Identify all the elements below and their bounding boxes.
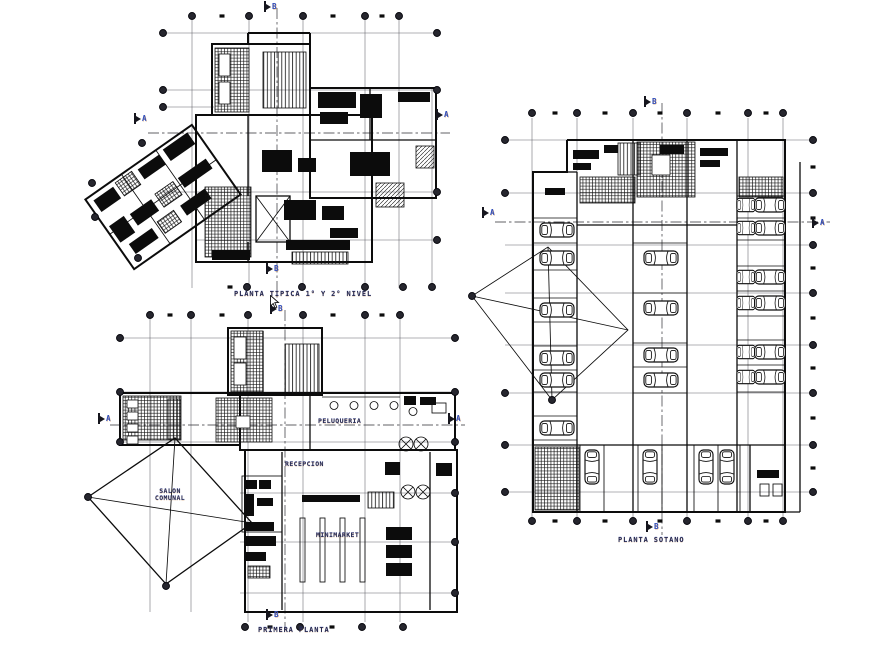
grid-bubble-icon xyxy=(147,312,154,319)
section-marker-a-typical-right: A xyxy=(438,110,449,119)
plan-basement xyxy=(469,103,831,535)
dimension-tick xyxy=(380,14,385,17)
grid-bubble-icon xyxy=(452,335,459,342)
car-icon xyxy=(755,270,786,284)
plan-title-typical: PLANTA TIPICA 1° Y 2° NIVEL xyxy=(234,290,372,298)
dimension-tick xyxy=(331,313,336,316)
stairs-and-elevators xyxy=(231,331,319,394)
grid-bubble-icon xyxy=(574,110,581,117)
dimension-tick xyxy=(716,111,721,114)
dimension-ticks xyxy=(168,313,385,628)
car-icon xyxy=(755,345,786,359)
dimension-tick xyxy=(220,14,225,17)
grid-bubble-icon xyxy=(188,312,195,319)
grid-bubble-icon xyxy=(630,518,637,525)
grid-bubble-icon xyxy=(434,87,441,94)
grid-bubble-icon xyxy=(362,312,369,319)
dimension-tick xyxy=(331,14,336,17)
label-salon-comunal: SALON COMUNAL xyxy=(138,488,202,503)
grid-bubble-icon xyxy=(684,110,691,117)
grid-bubble-icon xyxy=(85,494,92,501)
grid-bubble-icon xyxy=(117,439,124,446)
grid-bubble-icon xyxy=(810,290,817,297)
grid-bubble-icon xyxy=(300,13,307,20)
grid-bubble-icon xyxy=(529,110,536,117)
grid-bubble-icon xyxy=(810,342,817,349)
section-cut-flag-icon xyxy=(268,612,273,618)
dimension-tick xyxy=(330,625,335,628)
dimension-tick xyxy=(228,285,233,288)
dimension-tick xyxy=(764,111,769,114)
grid-bubble-icon xyxy=(117,335,124,342)
car-icon xyxy=(540,223,574,237)
salon-comunal-wing xyxy=(88,438,252,584)
car-icon xyxy=(585,450,599,484)
section-cut-flag-icon xyxy=(100,416,105,422)
section-cut-flag-icon xyxy=(484,210,489,216)
dimension-tick xyxy=(603,519,608,522)
grid-bubble-icon xyxy=(810,242,817,249)
stairs-and-elevators xyxy=(205,48,434,257)
grid-bubble-icon xyxy=(362,13,369,20)
dimension-tick xyxy=(811,316,816,319)
peluqueria-fixtures xyxy=(322,396,446,416)
dimension-tick xyxy=(811,165,816,168)
section-letter: B xyxy=(274,610,279,619)
toilets xyxy=(123,396,272,444)
section-cut-flag-icon xyxy=(814,220,819,226)
car-icon xyxy=(737,345,756,358)
section-letter: B xyxy=(272,2,277,11)
section-marker-b-basement-top: B xyxy=(646,97,657,106)
car-icon xyxy=(540,251,574,265)
dimension-tick xyxy=(811,466,816,469)
grid-bubble-icon xyxy=(502,137,509,144)
dimension-tick xyxy=(658,111,663,114)
grid-bubble-icon xyxy=(400,284,407,291)
dimension-tick xyxy=(716,519,721,522)
section-marker-a-first-right: A xyxy=(450,414,461,423)
section-marker-b-basement-bottom: B xyxy=(648,522,659,531)
grid-bubble-icon xyxy=(452,389,459,396)
grid-bubble-icon xyxy=(684,518,691,525)
car-icon xyxy=(737,221,756,234)
grid-bubble-icon xyxy=(160,104,167,111)
dimension-tick xyxy=(811,416,816,419)
car-icon xyxy=(720,450,734,484)
grid-bubble-icon xyxy=(163,583,170,590)
car-icon xyxy=(540,421,574,435)
floor-plans-drawing xyxy=(0,0,870,648)
grid-bubble-icon xyxy=(745,518,752,525)
dimension-tick xyxy=(380,313,385,316)
label-minimarket: MINIMARKET xyxy=(316,532,359,539)
section-marker-a-basement-right: A xyxy=(814,218,825,227)
car-icon xyxy=(737,198,756,211)
dimension-tick xyxy=(168,313,173,316)
label-salon-line2: COMUNAL xyxy=(138,495,202,502)
section-letter: B xyxy=(274,264,279,273)
car-icon xyxy=(755,296,786,310)
grid-bubble-icon xyxy=(780,518,787,525)
section-letter: A xyxy=(444,110,449,119)
grid-bubble-icon xyxy=(92,214,99,221)
dimension-tick xyxy=(553,111,558,114)
grid-bubble-icon xyxy=(117,389,124,396)
grid-bubble-icon xyxy=(452,490,459,497)
section-cut-flag-icon xyxy=(136,116,141,122)
section-marker-b-typical-bottom: B xyxy=(268,264,279,273)
grid-bubbles xyxy=(85,312,459,631)
section-cut-flag-icon xyxy=(438,112,443,118)
section-cut-flag-icon xyxy=(646,99,651,105)
car-icon xyxy=(755,370,786,384)
car-icon xyxy=(540,303,574,317)
section-marker-a-first-left: A xyxy=(100,414,111,423)
section-letter: A xyxy=(820,218,825,227)
section-marker-b-first-bottom: B xyxy=(268,610,279,619)
car-icon xyxy=(540,351,574,365)
car-icon xyxy=(755,221,786,235)
grid-bubble-icon xyxy=(630,110,637,117)
section-letter: A xyxy=(106,414,111,423)
grid-bubble-icon xyxy=(359,624,366,631)
grid-bubble-icon xyxy=(529,518,536,525)
grid-bubble-icon xyxy=(810,442,817,449)
car-icon xyxy=(699,450,713,484)
dimension-tick xyxy=(220,313,225,316)
grid-bubble-icon xyxy=(452,590,459,597)
section-marker-b-typical-top: B xyxy=(266,2,277,11)
grid-bubble-icon xyxy=(397,312,404,319)
grid-bubble-icon xyxy=(160,30,167,37)
car-icon xyxy=(737,296,756,309)
basement-rooms xyxy=(535,142,783,510)
section-marker-a-basement-left: A xyxy=(484,208,495,217)
grid-bubble-icon xyxy=(549,397,556,404)
grid-bubble-icon xyxy=(300,312,307,319)
dimension-tick xyxy=(811,366,816,369)
section-marker-a-typical-left: A xyxy=(136,114,147,123)
mouse-cursor-icon xyxy=(270,294,280,313)
fan-columns xyxy=(399,437,430,499)
grid-bubble-icon xyxy=(89,180,96,187)
grid-bubble-icon xyxy=(810,390,817,397)
grid-bubble-icon xyxy=(452,439,459,446)
dimension-tick xyxy=(603,111,608,114)
grid-bubble-icon xyxy=(246,13,253,20)
grid-bubble-icon xyxy=(780,110,787,117)
grid-bubble-icon xyxy=(396,13,403,20)
car-icon xyxy=(737,370,756,383)
grid-bubble-icon xyxy=(745,110,752,117)
grid-bubble-icon xyxy=(810,489,817,496)
section-letter: A xyxy=(456,414,461,423)
grid-bubble-icon xyxy=(502,190,509,197)
grid-bubble-icon xyxy=(810,137,817,144)
car-icon xyxy=(737,270,756,283)
section-letter: B xyxy=(652,97,657,106)
grid-bubble-icon xyxy=(189,13,196,20)
dimension-tick xyxy=(764,519,769,522)
section-cut-flag-icon xyxy=(268,266,273,272)
dimension-tick xyxy=(811,266,816,269)
cad-canvas: PLANTA TIPICA 1° Y 2° NIVEL PRIMERA PLAN… xyxy=(0,0,870,648)
grid-bubble-icon xyxy=(434,237,441,244)
grid-bubble-icon xyxy=(469,293,476,300)
car-icon xyxy=(540,373,574,387)
grid-bubble-icon xyxy=(434,30,441,37)
grid-bubble-icon xyxy=(242,624,249,631)
grid-bubble-icon xyxy=(434,189,441,196)
car-icon xyxy=(644,301,678,315)
grid-bubble-icon xyxy=(810,190,817,197)
grid-bubble-icon xyxy=(400,624,407,631)
section-cut-flag-icon xyxy=(266,4,271,10)
car-icon xyxy=(644,348,678,362)
car-icon xyxy=(644,373,678,387)
plan-title-first: PRIMERA PLANTA xyxy=(258,626,330,634)
plan-first-floor xyxy=(85,310,466,631)
car-icon xyxy=(755,198,786,212)
car-icon xyxy=(643,450,657,484)
grid-bubble-icon xyxy=(135,255,142,262)
grid-bubble-icon xyxy=(160,87,167,94)
plan-title-basement: PLANTA SOTANO xyxy=(618,536,685,544)
section-letter: B xyxy=(654,522,659,531)
grid-bubble-icon xyxy=(574,518,581,525)
section-cut-flag-icon xyxy=(450,416,455,422)
label-recepcion: RECEPCION xyxy=(285,461,324,468)
grid-bubble-icon xyxy=(139,140,146,147)
section-letter: A xyxy=(490,208,495,217)
grid-bubble-icon xyxy=(452,539,459,546)
plan-typical-floor xyxy=(85,8,450,298)
grid-bubble-icon xyxy=(245,312,252,319)
car-icon xyxy=(644,251,678,265)
minimarket-fixtures xyxy=(300,462,452,582)
grid-bubble-icon xyxy=(429,284,436,291)
grid-bubble-icon xyxy=(502,489,509,496)
grid-bubble-icon xyxy=(502,442,509,449)
label-peluqueria: PELUQUERIA xyxy=(318,418,361,425)
grid-bubble-icon xyxy=(502,390,509,397)
dimension-tick xyxy=(553,519,558,522)
section-cut-flag-icon xyxy=(648,524,653,530)
section-letter: A xyxy=(142,114,147,123)
